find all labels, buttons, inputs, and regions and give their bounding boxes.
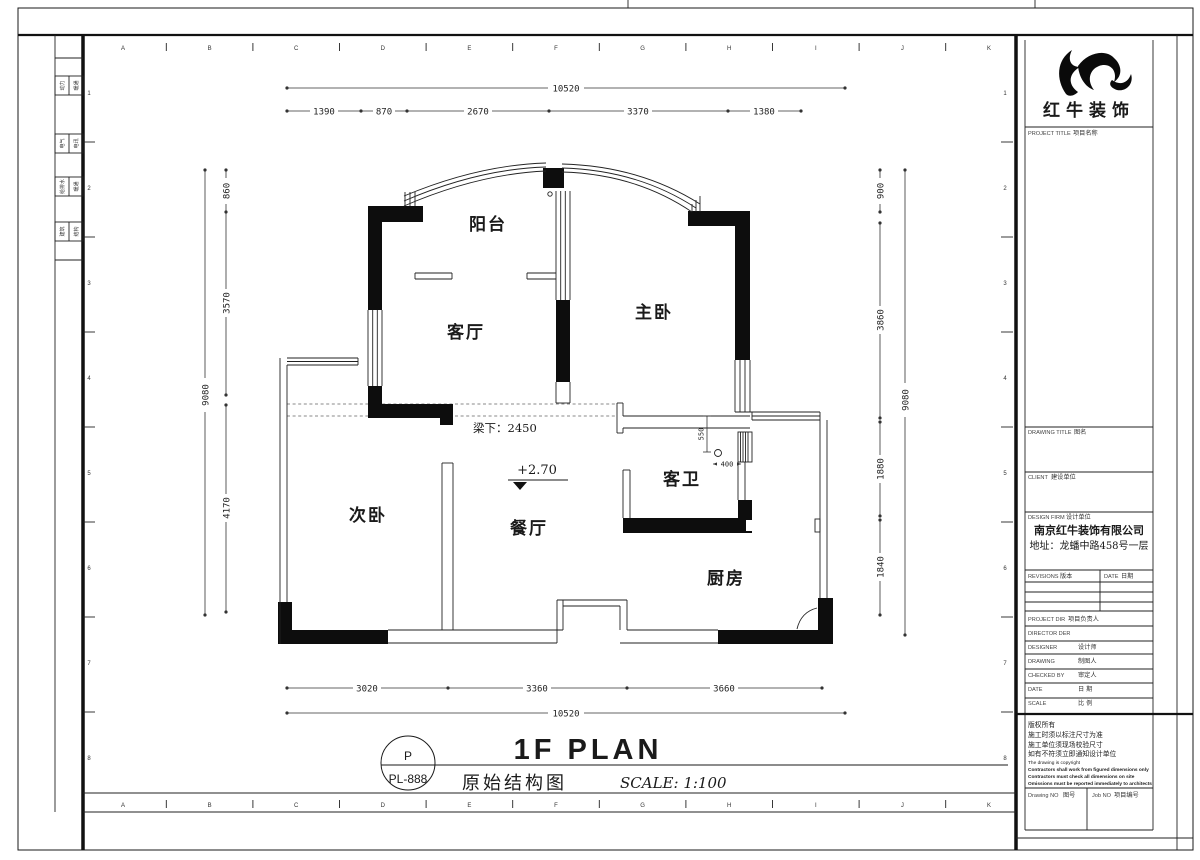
dim-top-total: 10520 (552, 85, 579, 95)
client-label: CLIENT (1028, 475, 1048, 481)
grid-number-left: 2 (87, 186, 91, 192)
note-line: 如有不符须立即通知设计单位 (1028, 749, 1117, 758)
level-note: +2.70 (517, 463, 557, 478)
note-line-en: Omissions must be reported immediately t… (1028, 781, 1152, 787)
firm-address: 地址：龙蟠中路458号一层 (1029, 539, 1148, 552)
grid-letter-top: A (121, 46, 125, 52)
pipe-symbol (548, 192, 552, 196)
dim-bath-400: 400 (721, 461, 734, 469)
room-label-balcony: 阳台 (469, 214, 507, 235)
grid-number-left: 1 (87, 91, 91, 97)
discipline-stamp: 电气 (59, 138, 66, 148)
sheet-number: PL-888 (389, 772, 428, 786)
room-label-master: 主卧 (635, 302, 673, 323)
beam-note: 梁下：2450 (473, 421, 537, 435)
revisions-label: REVISIONS (1028, 574, 1059, 580)
level-marker-icon (513, 482, 527, 490)
grid-number-right: 6 (1003, 566, 1007, 572)
designer-label-cn: 设计师 (1078, 643, 1097, 651)
sheet-footer: P PL-888 1F PLAN 原始结构图 SCALE: 1:100 (381, 734, 1008, 794)
rev-date-label-cn: 日期 (1121, 572, 1133, 580)
dim-left-3: 4170 (223, 497, 233, 519)
grid-letter-bottom: J (901, 803, 904, 809)
grid-number-left: 7 (87, 661, 91, 667)
firm-name: 南京红牛装饰有限公司 (1034, 523, 1144, 537)
dim-top-5: 1380 (753, 108, 775, 118)
grid-letter-top: F (554, 46, 558, 52)
scale-label: SCALE (1028, 701, 1047, 707)
title-block: 红牛装饰 PROJECT TITLE 项目名称 DRAWING TITLE 图名… (1016, 40, 1193, 830)
note-line-en: Contractors must check all dimensions on… (1028, 774, 1135, 780)
rev-date-label: DATE (1104, 574, 1119, 580)
date-label-cn: 日 期 (1078, 685, 1092, 693)
checked-by-label-cn: 审定人 (1078, 671, 1097, 679)
grid-number-right: 8 (1003, 756, 1007, 762)
dim-bottom-2: 3360 (526, 685, 548, 695)
grid-letter-bottom: F (554, 803, 558, 809)
grid-number-left: 5 (87, 471, 91, 477)
grid-letter-bottom: A (121, 803, 125, 809)
grid-letter-top: E (467, 46, 471, 52)
project-title-label: PROJECT TITLE (1028, 131, 1071, 137)
firm-logo-text: 红牛装饰 (1043, 100, 1135, 121)
dim-right-total: 9080 (902, 389, 912, 411)
job-no-label: Job NO (1092, 793, 1112, 799)
dim-right-2: 3860 (877, 309, 887, 331)
note-line-en: Contractors shall work from figured dime… (1028, 767, 1149, 773)
dim-bottom-1: 3020 (356, 685, 378, 695)
grid-number-right: 7 (1003, 661, 1007, 667)
room-label-second: 次卧 (349, 505, 387, 526)
pipe-symbol (715, 450, 722, 457)
checked-by-label: CHECKED BY (1028, 673, 1065, 679)
dim-top-3: 2670 (467, 108, 489, 118)
note-line: 施工时须以标注尺寸为准 (1028, 730, 1103, 739)
grid-letter-top: G (640, 46, 645, 52)
dim-bottom-3: 3660 (713, 685, 735, 695)
grid-number-right: 4 (1003, 376, 1007, 382)
room-label-living: 客厅 (446, 322, 485, 343)
revisions-label-cn: 版本 (1060, 572, 1072, 580)
discipline-stamp: 建筑 (59, 226, 66, 236)
discipline-stamp: 结构 (73, 226, 80, 236)
project-dir-label: PROJECT DIR (1028, 617, 1065, 623)
project-title-label-cn: 项目名称 (1073, 129, 1098, 137)
plan-title-en: 1F PLAN (514, 734, 663, 766)
director-label: DIRECTOR DER (1028, 631, 1070, 637)
room-label-bath: 客卫 (662, 469, 701, 490)
job-no-label-cn: 项目编号 (1114, 791, 1139, 799)
grid-letter-top: J (901, 46, 904, 52)
dim-bottom-total: 10520 (552, 710, 579, 720)
dim-left-2: 3570 (223, 292, 233, 314)
grid-number-right: 1 (1003, 91, 1007, 97)
drawing-sheet: AABBCCDDEEFFGGHHIIJJKK1122334455667788动力… (0, 0, 1200, 860)
drawing-by-label: DRAWING (1028, 659, 1055, 665)
discipline-stamp: 动力 (59, 80, 66, 90)
discipline-stamp: 电讯 (73, 138, 80, 148)
grid-letter-top: I (815, 46, 817, 52)
designer-label: DESIGNER (1028, 645, 1057, 651)
grid-letter-top: H (727, 46, 731, 52)
grid-letter-bottom: E (467, 803, 471, 809)
sheet-frame (18, 0, 1193, 850)
discipline-stamp: 暖通 (73, 181, 80, 191)
design-firm-label-cn: 设计单位 (1066, 513, 1091, 521)
grid-number-right: 2 (1003, 186, 1007, 192)
discipline-stamp: 给排水 (59, 179, 66, 194)
grid-number-left: 3 (87, 281, 91, 287)
grid-number-right: 3 (1003, 281, 1007, 287)
dim-left-1: 860 (223, 183, 233, 199)
grid-letter-top: K (987, 46, 991, 52)
design-firm-label: DESIGN FIRM (1028, 515, 1065, 521)
client-label-cn: 建设单位 (1051, 473, 1076, 481)
grid-number-right: 5 (1003, 471, 1007, 477)
grid-letter-bottom: B (208, 803, 212, 809)
drawing-by-label-cn: 制图人 (1078, 657, 1097, 665)
note-line: 版权所有 (1028, 720, 1055, 729)
plan-scale: SCALE: 1:100 (620, 774, 727, 792)
date-label: DATE (1028, 687, 1043, 693)
drawing-no-label: Drawing NO (1028, 793, 1059, 799)
drawing-title-label: DRAWING TITLE (1028, 430, 1072, 436)
dim-left-total: 9080 (202, 384, 212, 406)
grid-letter-top: B (208, 46, 212, 52)
dim-right-3: 1880 (877, 458, 887, 480)
dim-top-2: 870 (376, 108, 392, 118)
dim-top-1: 1390 (313, 108, 335, 118)
grid-number-left: 4 (87, 376, 91, 382)
drawing-no-label-cn: 图号 (1063, 792, 1075, 799)
project-dir-label-cn: 项目负责人 (1068, 615, 1099, 623)
firm-logo-icon (1059, 50, 1132, 96)
grid-letter-bottom: K (987, 803, 991, 809)
dim-right-1: 900 (877, 183, 887, 199)
note-line: 施工单位须现场校验尺寸 (1028, 740, 1103, 749)
dim-bath-550: 550 (698, 428, 706, 441)
dim-right-4: 1840 (877, 556, 887, 578)
room-label-kitchen: 厨房 (707, 568, 745, 589)
room-label-dining: 餐厅 (510, 518, 548, 539)
grid-number-left: 6 (87, 566, 91, 572)
note-line-en: The drawing is copyright (1028, 760, 1081, 766)
grid-letter-bottom: D (381, 803, 386, 809)
grid-letter-top: C (294, 46, 299, 52)
plan-title-cn: 原始结构图 (462, 773, 567, 794)
grid-letter-bottom: I (815, 803, 817, 809)
grid-letter-top: D (381, 46, 386, 52)
scale-label-cn: 比 例 (1078, 699, 1092, 707)
grid-letter-bottom: H (727, 803, 731, 809)
grid-number-left: 8 (87, 756, 91, 762)
kitchen-corner-detail (797, 608, 817, 629)
sheet-key-letter: P (404, 749, 412, 763)
discipline-stamp: 暖通 (73, 80, 80, 90)
dim-top-4: 3370 (627, 108, 649, 118)
floor-plan: 阳台 客厅 主卧 次卧 餐厅 客卫 厨房 梁下：2450 +2.70 550 (278, 163, 833, 644)
grid-letter-bottom: G (640, 803, 645, 809)
drawing-title-label-cn: 图名 (1074, 428, 1086, 436)
grid-letter-bottom: C (294, 803, 299, 809)
